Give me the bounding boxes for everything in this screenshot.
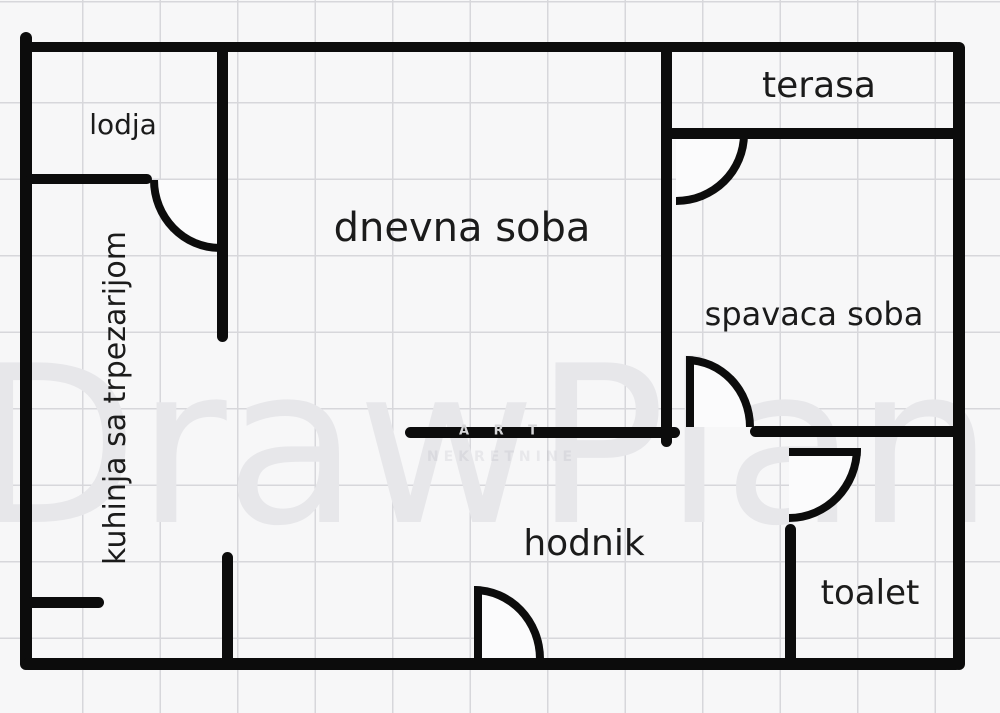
floor-plan-canvas: DrawPlan A R T NEKRETNINE lodja dnevna s…	[0, 0, 1000, 713]
room-label-kuhinja: kuhinja sa trpezarijom	[101, 231, 131, 565]
wall-outer-bottom	[22, 658, 962, 670]
wall-toalet-left	[785, 524, 796, 664]
wall-terasa-bottom	[667, 128, 962, 139]
wall-spavaca-toalet-top	[750, 426, 962, 437]
room-label-lodja: lodja	[89, 111, 157, 139]
wall-lodja-bottom	[26, 174, 152, 184]
door-arc-terasa	[676, 134, 748, 205]
room-label-terasa: terasa	[762, 68, 876, 104]
agency-watermark-line2: NEKRETNINE	[427, 449, 577, 465]
wall-lodja-kuhinja-right	[217, 46, 228, 342]
wall-kuhinja-right-lower	[222, 552, 233, 664]
wall-outer-left	[20, 32, 32, 670]
drawplan-watermark: DrawPlan	[0, 348, 992, 545]
room-label-hodnik: hodnik	[523, 526, 644, 562]
wall-kuhinja-counter-stub	[26, 597, 104, 608]
wall-dnevna-spavaca-divider	[661, 46, 672, 447]
agency-watermark-line1: A R T	[459, 424, 547, 439]
room-label-dnevna-soba: dnevna soba	[334, 208, 591, 248]
door-arc-hodnik	[474, 586, 544, 659]
room-label-toalet: toalet	[821, 576, 920, 610]
door-arc-lodja	[150, 180, 220, 252]
wall-outer-top	[22, 42, 962, 52]
room-label-spavaca-soba: spavaca soba	[705, 298, 924, 330]
